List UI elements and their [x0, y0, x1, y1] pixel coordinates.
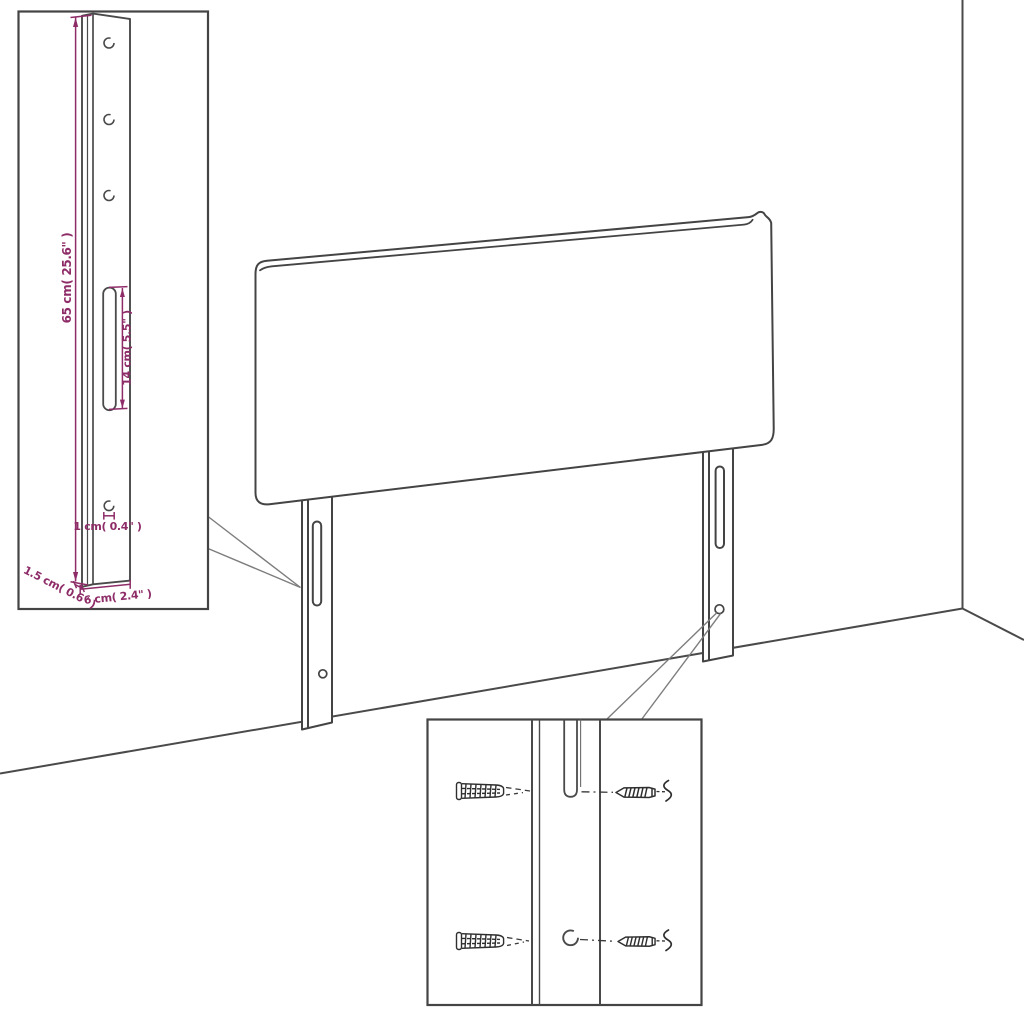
screw-hole [715, 605, 724, 614]
callout-lines [208, 517, 721, 720]
headboard-leg-left [302, 487, 332, 730]
inset-callout-line [208, 549, 301, 588]
diagram-canvas: 65 cm( 25.6" ) 14 cm( 5.5" ) 1 cm( 0.4" … [0, 0, 1024, 1024]
mounting-slot [313, 522, 321, 606]
dim-tick [109, 287, 128, 288]
dimension-label-hole-diameter: 1 cm( 0.4" ) [73, 520, 142, 533]
dim-tick [109, 408, 128, 409]
screw-hole [319, 670, 327, 678]
leg-detail-inset: 65 cm( 25.6" ) 14 cm( 5.5" ) 1 cm( 0.4" … [19, 12, 209, 612]
screw-icon [618, 937, 655, 947]
dimension-label-total-height: 65 cm( 25.6" ) [60, 233, 74, 324]
hole-callout-line [642, 614, 721, 720]
screw-icon [616, 788, 655, 798]
floor-line-right [963, 609, 1024, 641]
inset-callout-line [208, 517, 301, 588]
hardware-detail-inset [428, 720, 702, 1006]
headboard-leg-right [703, 433, 733, 662]
mounting-slot [716, 467, 724, 549]
assembly-diagram: 65 cm( 25.6" ) 14 cm( 5.5" ) 1 cm( 0.4" … [0, 0, 1024, 1024]
panel-outline [256, 212, 774, 504]
headboard-panel [256, 212, 774, 504]
dimension-label-slot-length: 14 cm( 5.5" ) [121, 310, 134, 386]
